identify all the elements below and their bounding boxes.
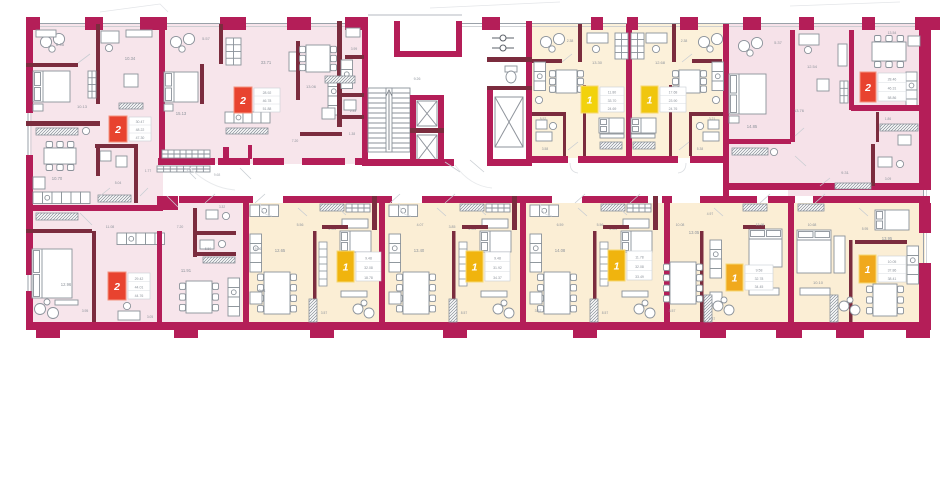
svg-text:3.64: 3.64: [259, 289, 266, 293]
svg-text:13.40: 13.40: [414, 248, 425, 253]
svg-text:2.33: 2.33: [350, 109, 356, 113]
svg-text:8.45: 8.45: [56, 42, 65, 47]
svg-text:28.46: 28.46: [888, 77, 897, 81]
svg-text:1.86: 1.86: [885, 117, 891, 121]
svg-text:24.76: 24.76: [669, 107, 678, 111]
svg-text:44.76: 44.76: [135, 294, 144, 298]
svg-text:12.65: 12.65: [275, 248, 286, 253]
svg-text:33.71: 33.71: [261, 60, 272, 65]
svg-text:9.06: 9.06: [255, 247, 262, 251]
svg-text:2.38: 2.38: [681, 39, 688, 43]
svg-text:30.47: 30.47: [136, 120, 145, 124]
svg-text:28.92: 28.92: [263, 91, 272, 95]
svg-text:2.38: 2.38: [567, 39, 574, 43]
svg-text:1: 1: [587, 95, 593, 107]
svg-text:34.45: 34.45: [755, 285, 764, 289]
svg-text:3.99: 3.99: [351, 47, 358, 51]
svg-text:9.48: 9.48: [365, 257, 372, 261]
svg-text:2: 2: [239, 95, 246, 107]
svg-text:3.58: 3.58: [542, 147, 549, 151]
svg-text:5.04: 5.04: [115, 181, 122, 185]
svg-text:37.86: 37.86: [888, 268, 897, 272]
svg-text:10.70: 10.70: [52, 176, 63, 181]
svg-text:46.31: 46.31: [888, 87, 897, 91]
svg-text:13.54: 13.54: [888, 31, 897, 35]
svg-text:1: 1: [472, 262, 478, 274]
svg-text:9.58: 9.58: [756, 269, 763, 273]
svg-text:32.08: 32.08: [635, 265, 644, 269]
svg-text:14.08: 14.08: [555, 248, 566, 253]
svg-text:5.57: 5.57: [202, 36, 211, 41]
svg-text:12.96: 12.96: [61, 282, 72, 287]
svg-text:38.41: 38.41: [888, 277, 897, 281]
svg-text:1: 1: [647, 95, 653, 107]
svg-text:10.13: 10.13: [77, 104, 88, 109]
svg-text:11.08: 11.08: [106, 225, 115, 229]
svg-text:13.95: 13.95: [756, 223, 765, 227]
svg-text:18.78: 18.78: [364, 276, 373, 280]
svg-text:3.09: 3.09: [885, 177, 892, 181]
svg-text:3.57: 3.57: [321, 311, 328, 315]
svg-text:1: 1: [732, 273, 738, 285]
svg-text:1: 1: [614, 261, 620, 273]
svg-text:4.97: 4.97: [707, 212, 714, 216]
svg-text:58.86: 58.86: [888, 96, 897, 100]
svg-text:33.49: 33.49: [635, 275, 644, 279]
svg-text:3.57: 3.57: [535, 309, 542, 313]
svg-text:23.90: 23.90: [669, 99, 678, 103]
svg-text:2: 2: [864, 82, 871, 94]
svg-text:32.08: 32.08: [364, 266, 373, 270]
svg-text:8.57: 8.57: [461, 311, 468, 315]
svg-text:51.88: 51.88: [263, 107, 272, 111]
svg-text:9.31: 9.31: [841, 170, 850, 175]
svg-text:5.56: 5.56: [297, 223, 304, 227]
svg-text:24.69: 24.69: [608, 107, 617, 111]
svg-text:3.57: 3.57: [669, 309, 676, 313]
svg-text:3.05: 3.05: [147, 315, 153, 319]
svg-text:4.37: 4.37: [709, 317, 716, 321]
svg-text:46.78: 46.78: [263, 99, 272, 103]
svg-text:11.78: 11.78: [635, 256, 644, 260]
svg-text:33.70: 33.70: [608, 99, 617, 103]
svg-text:13.76: 13.76: [794, 108, 805, 113]
svg-text:48.22: 48.22: [136, 128, 145, 132]
svg-text:8.57: 8.57: [602, 311, 609, 315]
svg-text:10.68: 10.68: [808, 223, 817, 227]
svg-text:2: 2: [113, 281, 120, 293]
svg-text:4.07: 4.07: [417, 223, 424, 227]
svg-text:7.20: 7.20: [177, 225, 184, 229]
svg-text:10.08: 10.08: [676, 223, 685, 227]
svg-text:7.20: 7.20: [292, 139, 299, 143]
svg-text:12.54: 12.54: [807, 64, 818, 69]
svg-text:5.37: 5.37: [774, 40, 783, 45]
svg-text:3.85: 3.85: [449, 225, 456, 229]
svg-text:5.56: 5.56: [597, 223, 604, 227]
svg-text:14.85: 14.85: [747, 124, 758, 129]
svg-text:6.59: 6.59: [557, 223, 564, 227]
svg-text:13.05: 13.05: [689, 230, 700, 235]
svg-text:10.05: 10.05: [888, 260, 897, 264]
svg-text:9.26: 9.26: [414, 77, 421, 81]
svg-text:29.42: 29.42: [135, 277, 144, 281]
svg-text:3.32: 3.32: [219, 205, 225, 209]
svg-text:12.68: 12.68: [655, 60, 666, 65]
svg-text:11.91: 11.91: [181, 268, 192, 273]
svg-text:9.68: 9.68: [214, 173, 221, 177]
svg-text:5.50: 5.50: [205, 247, 211, 251]
svg-text:17.68: 17.68: [669, 91, 678, 95]
svg-text:1: 1: [865, 264, 871, 276]
svg-text:5.95: 5.95: [862, 227, 869, 231]
svg-text:34.37: 34.37: [493, 276, 502, 280]
svg-text:47.30: 47.30: [136, 136, 145, 140]
svg-text:2: 2: [114, 124, 121, 136]
svg-text:1.77: 1.77: [145, 169, 151, 173]
svg-text:32.78: 32.78: [755, 277, 764, 281]
svg-text:9.48: 9.48: [494, 257, 501, 261]
svg-text:15.13: 15.13: [176, 111, 187, 116]
svg-text:11.80: 11.80: [608, 91, 617, 95]
svg-text:5.38: 5.38: [697, 147, 704, 151]
svg-text:31.92: 31.92: [493, 266, 502, 270]
svg-text:44.01: 44.01: [135, 285, 144, 289]
svg-text:13.30: 13.30: [592, 60, 603, 65]
svg-text:3.95: 3.95: [82, 309, 89, 313]
svg-text:13.06: 13.06: [306, 84, 317, 89]
svg-text:10.34: 10.34: [125, 56, 136, 61]
svg-text:1.38: 1.38: [349, 132, 355, 136]
svg-text:1: 1: [343, 262, 349, 274]
svg-text:10.10: 10.10: [813, 280, 824, 285]
